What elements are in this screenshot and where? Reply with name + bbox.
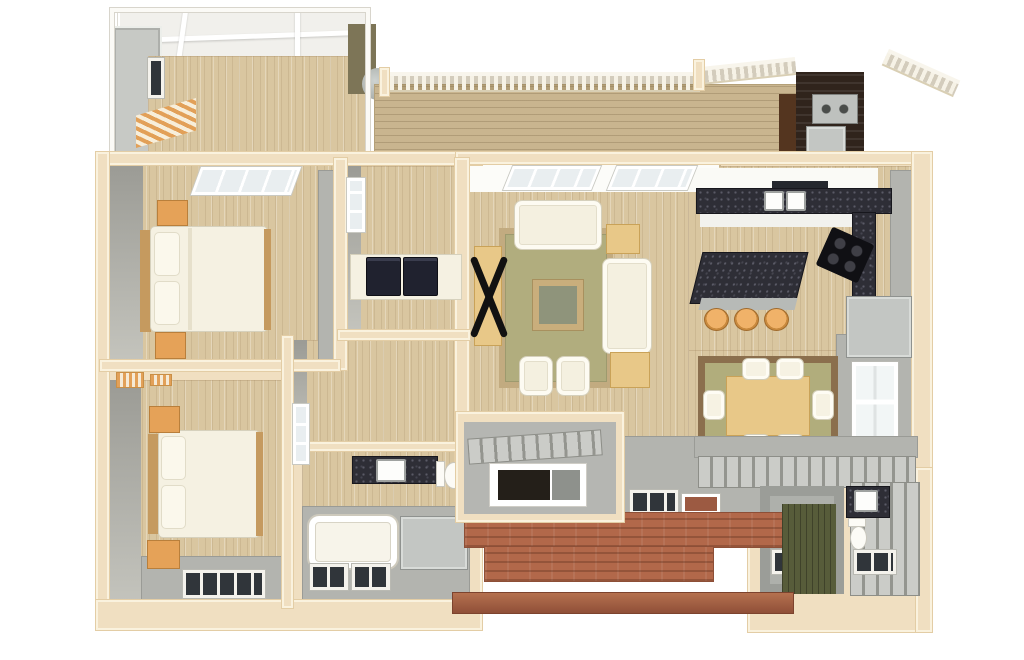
bedroom2-pillow-1	[161, 436, 186, 480]
kitchen-cabinets-east	[846, 296, 912, 358]
wall-bathroom-north	[293, 442, 471, 451]
nightstand-2	[155, 332, 186, 359]
hall-window	[293, 404, 309, 464]
nightstand-1	[157, 200, 188, 226]
wall-master-south	[100, 360, 340, 371]
bedroom2-west-wall-face	[107, 380, 141, 606]
sink-basin-1	[764, 191, 784, 211]
grill-burners	[812, 94, 858, 124]
bonus-room-frame	[110, 8, 370, 162]
bar-stool-3	[764, 308, 789, 331]
bath-bench	[400, 516, 468, 570]
master-bed-footrail	[264, 229, 271, 330]
bedroom2-pillow-2	[161, 485, 186, 529]
closet-shelf-1	[116, 372, 144, 388]
dining-chair-n2	[776, 358, 804, 380]
deck-railing-corner	[882, 49, 961, 97]
washer	[366, 257, 401, 296]
olive-siding	[782, 504, 836, 594]
laundry-window	[347, 178, 365, 232]
coffee-table	[533, 280, 583, 330]
bathroom2-window	[854, 550, 896, 574]
front-ledge	[452, 592, 794, 614]
north-wall-left	[96, 152, 482, 165]
vanity-sink	[376, 459, 406, 482]
nightstand-3	[149, 406, 180, 433]
deck-rail-post-1	[380, 68, 389, 96]
stair-opening-dark	[498, 470, 550, 500]
armchair-2	[556, 356, 590, 396]
dining-chair-e	[812, 390, 834, 420]
master-bed-pillow-2	[154, 281, 180, 325]
living-skylight-2	[607, 166, 697, 190]
bathroom2-sink	[854, 490, 878, 512]
deck-rail-post-2	[694, 60, 704, 90]
bathtub	[307, 514, 399, 570]
dryer	[403, 257, 438, 296]
master-west-wall-face	[107, 164, 143, 362]
wall-laundry-south	[338, 330, 470, 340]
kitchen-counter-north-face	[700, 214, 860, 227]
deck-railing-right	[699, 57, 796, 85]
living-skylight-1	[503, 166, 601, 190]
closet-shelf-2	[150, 374, 172, 386]
stair-opening-light	[552, 470, 580, 500]
bath-window-2	[352, 564, 390, 590]
bedroom2-window	[183, 570, 265, 598]
front-window-1	[630, 490, 678, 514]
sofa	[602, 258, 652, 354]
armchair-1	[519, 356, 553, 396]
side-table-north	[606, 224, 640, 254]
front-window-2	[682, 494, 720, 514]
deck-railing	[382, 72, 700, 92]
dining-chair-n1	[742, 358, 770, 380]
back-landing	[694, 436, 918, 458]
ceiling-fan	[470, 254, 508, 340]
brick-band-2	[484, 546, 714, 582]
floorplan-scene	[0, 0, 1024, 660]
dining-chair-w	[703, 390, 725, 420]
toilet-2-bowl	[850, 526, 867, 550]
wall-hall-west	[282, 336, 293, 608]
bar-stool-2	[734, 308, 759, 331]
master-bed-pillow-1	[154, 232, 180, 276]
master-window	[191, 167, 301, 195]
loveseat	[514, 200, 602, 250]
side-table-south	[610, 352, 650, 388]
west-wall	[96, 152, 109, 630]
dining-table	[726, 376, 810, 436]
bar-stool-1	[704, 308, 729, 331]
kitchen-island-top	[690, 252, 809, 304]
sink-basin-2	[786, 191, 806, 211]
master-bed-blanket-seam	[188, 228, 192, 330]
master-east-wall-face	[318, 170, 335, 362]
nightstand-4	[147, 540, 180, 569]
dining-window	[852, 362, 898, 444]
north-wall-right	[456, 152, 932, 164]
bedroom2-bed-footrail	[256, 432, 263, 536]
bath-window-1	[310, 564, 348, 590]
